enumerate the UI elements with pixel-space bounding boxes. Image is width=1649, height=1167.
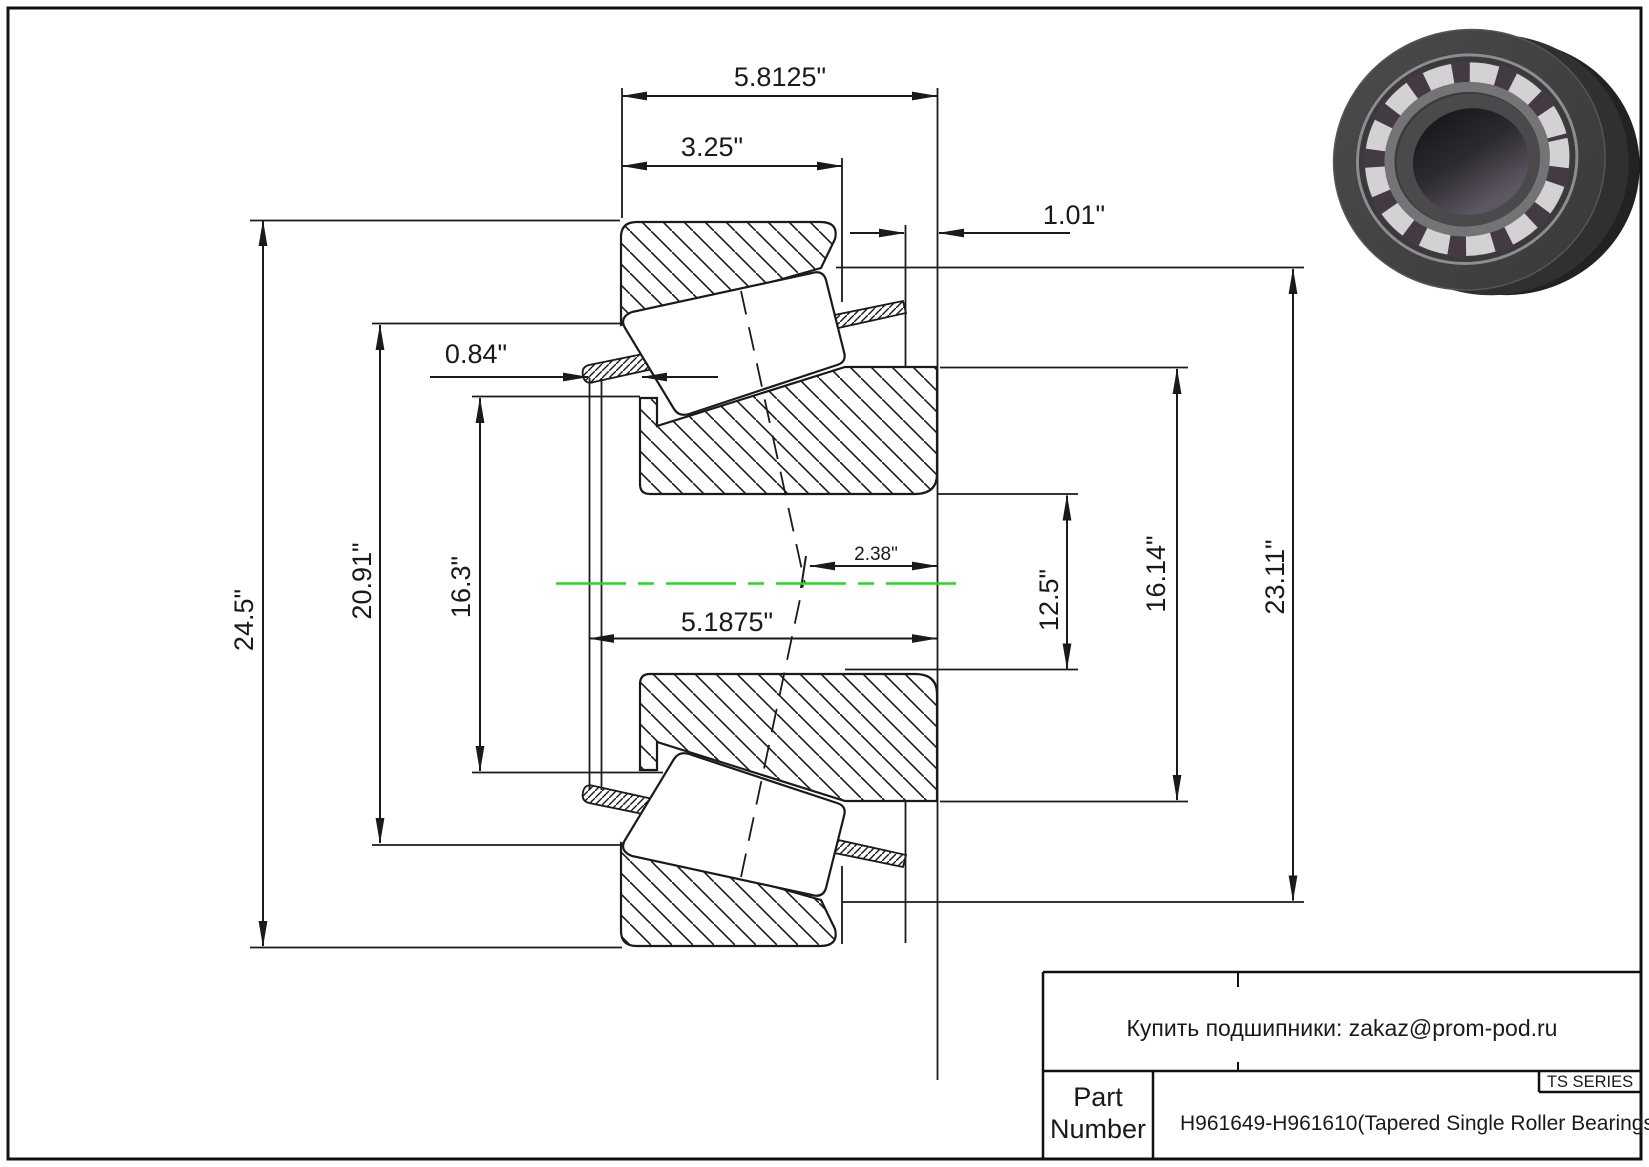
dim-cage-offset: 0.84" — [445, 339, 507, 369]
dim-rib-diameter: 16.3" — [446, 556, 476, 618]
dim-cup-width: 3.25" — [681, 132, 743, 162]
drawing-sheet: 5.8125" 3.25" 1.01" 0.84" 2.38" 5.1875" … — [0, 0, 1649, 1167]
dim-back-face-diameter: 16.14" — [1141, 535, 1171, 612]
part-label-line2: Number — [1050, 1114, 1146, 1144]
dim-flange-diameter: 23.11" — [1260, 539, 1290, 614]
part-label-line1: Part — [1073, 1082, 1123, 1112]
dim-back-offset: 1.01" — [1043, 200, 1105, 230]
dim-outer-diameter: 24.5" — [229, 589, 259, 651]
dim-apex-offset: 2.38" — [854, 544, 898, 565]
dim-overall-width: 5.8125" — [734, 62, 826, 92]
part-number-value: H961649-H961610(Tapered Single Roller Be… — [1180, 1112, 1649, 1135]
supplier-note: Купить подшипники: zakaz@prom-pod.ru — [1127, 1015, 1558, 1041]
dim-bore-diameter: 12.5" — [1034, 569, 1064, 631]
dim-cone-width: 5.1875" — [681, 607, 773, 637]
technical-drawing: 5.8125" 3.25" 1.01" 0.84" 2.38" 5.1875" … — [0, 0, 1649, 1167]
dim-race-diameter: 20.91" — [347, 542, 377, 619]
series-badge: TS SERIES — [1547, 1073, 1633, 1091]
